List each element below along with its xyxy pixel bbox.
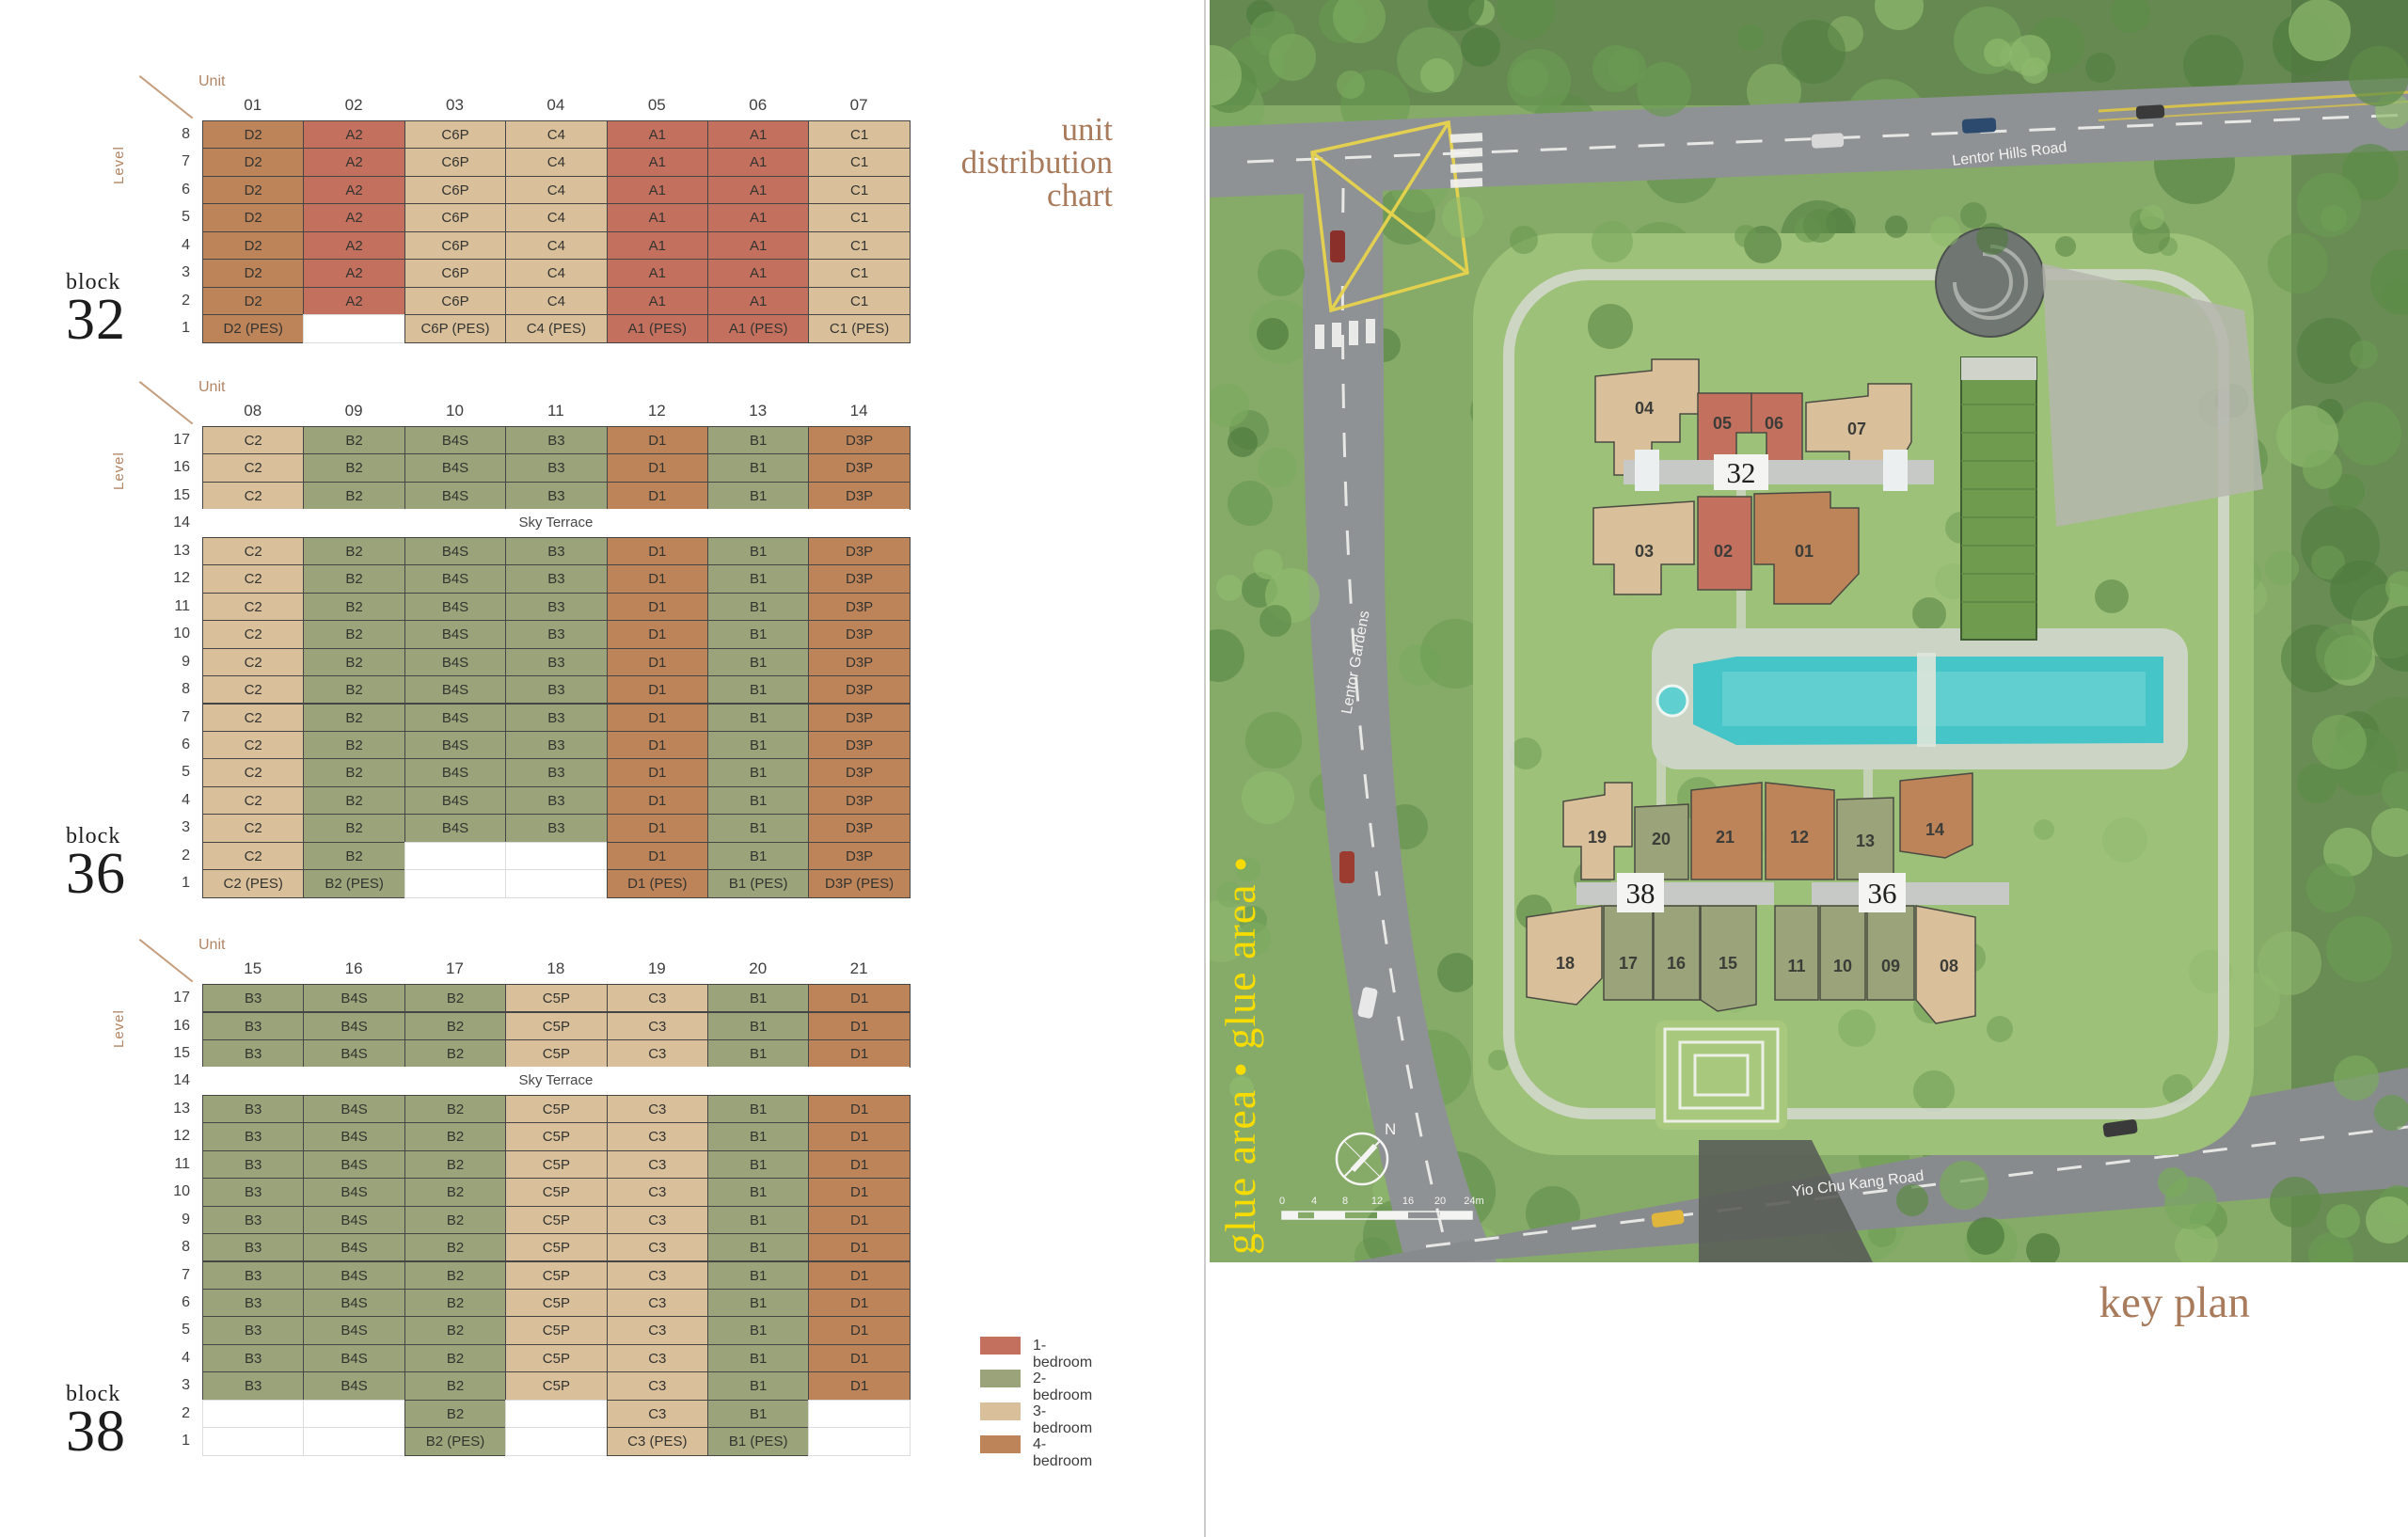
unit-cell: D1 [808, 1344, 910, 1372]
level-number: 13 [141, 537, 190, 564]
unit-cell: B1 [707, 1316, 809, 1344]
level-number: 12 [141, 564, 190, 592]
plan-unit-11: 11 [1787, 957, 1805, 975]
unit-cell: B1 [707, 1233, 809, 1261]
unit-cell: C3 [607, 1206, 708, 1234]
level-number: 5 [141, 1316, 190, 1343]
unit-cell: D2 [202, 259, 304, 287]
block-number: 38 [66, 1405, 126, 1458]
plan-unit-02: 02 [1714, 542, 1733, 561]
unit-cell: B4S [404, 675, 506, 704]
unit-cell: C3 [607, 1316, 708, 1344]
column-header: 11 [505, 401, 606, 421]
legend-label: 4-bedroom [1033, 1436, 1092, 1470]
unit-cell: B4S [404, 482, 506, 510]
unit-cell: C6P [404, 148, 506, 176]
unit-cell: D1 [607, 482, 708, 510]
unit-cell: C2 (PES) [202, 869, 304, 897]
unit-cell: B1 [707, 482, 809, 510]
plan-unit-01: 01 [1795, 542, 1814, 561]
plan-unit-16: 16 [1667, 954, 1686, 973]
block-number: 32 [66, 293, 126, 346]
unit-cell: D3P [808, 593, 910, 621]
empty-cell [505, 1400, 607, 1428]
scale-12: 12 [1371, 1196, 1383, 1207]
unit-cell: B3 [505, 620, 607, 648]
unit-cell: C3 [607, 1344, 708, 1372]
unit-cell: C6P [404, 176, 506, 204]
unit-cell: D1 [808, 1095, 910, 1123]
unit-cell: C2 [202, 648, 304, 676]
block-label: block36 [66, 825, 126, 900]
unit-cell: A1 [707, 287, 809, 315]
column-header: 07 [808, 95, 909, 116]
level-number: 17 [141, 426, 190, 453]
unit-cell: C2 [202, 675, 304, 704]
unit-cell: A1 [707, 120, 809, 149]
unit-cell: D1 [607, 537, 708, 565]
unit-cell: C4 [505, 176, 607, 204]
unit-cell: C6P [404, 120, 506, 149]
unit-cell: D3P [808, 453, 910, 482]
level-number: 1 [141, 314, 190, 341]
unit-cell: B3 [505, 786, 607, 815]
unit-cell: C2 [202, 786, 304, 815]
unit-cell: B4S [404, 620, 506, 648]
unit-cell: C1 [808, 203, 910, 231]
column-header: 16 [303, 959, 404, 979]
column-header: 10 [404, 401, 505, 421]
empty-cell [505, 1427, 607, 1455]
unit-cell: B2 (PES) [404, 1427, 506, 1455]
unit-cell: C2 [202, 426, 304, 454]
axis-diagonal-line [139, 75, 194, 119]
column-header: 15 [202, 959, 303, 979]
unit-cell: B2 [404, 1178, 506, 1206]
plan-block-38: 38 [1626, 877, 1655, 910]
unit-cell: A2 [303, 231, 404, 260]
unit-cell: C3 [607, 1233, 708, 1261]
unit-cell: B4S [303, 1122, 404, 1150]
unit-cell: C5P [505, 1206, 607, 1234]
level-number: 1 [141, 1427, 190, 1454]
empty-cell [505, 842, 607, 870]
unit-cell: C4 [505, 120, 607, 149]
key-plan-aerial: 04 05 06 07 03 02 01 32 19 20 21 12 13 1… [1210, 0, 2408, 1262]
legend-swatch-4bedroom [980, 1435, 1021, 1453]
column-header: 21 [808, 959, 909, 979]
unit-cell: D2 (PES) [202, 314, 304, 342]
unit-cell: D3P [808, 842, 910, 870]
unit-cell: C2 [202, 731, 304, 759]
column-header: 20 [707, 959, 808, 979]
column-header: 13 [707, 401, 808, 421]
column-header: 03 [404, 95, 505, 116]
unit-cell: B1 [707, 537, 809, 565]
unit-cell: B3 [202, 1095, 304, 1123]
level-number: 14 [141, 509, 190, 536]
unit-cell: B4S [303, 1316, 404, 1344]
empty-cell [303, 314, 404, 342]
unit-cell: A1 (PES) [607, 314, 708, 342]
unit-cell: D1 [808, 1178, 910, 1206]
scale-4: 4 [1311, 1196, 1317, 1207]
unit-cell: C4 [505, 259, 607, 287]
unit-cell: B2 [303, 704, 404, 732]
empty-cell [202, 1400, 304, 1428]
unit-cell: C3 [607, 1371, 708, 1400]
unit-cell: D3P [808, 537, 910, 565]
unit-cell: B3 [202, 1039, 304, 1068]
unit-cell: B1 [707, 1039, 809, 1068]
unit-cell: D3P (PES) [808, 869, 910, 897]
unit-cell: B1 [707, 842, 809, 870]
unit-cell: A1 [607, 287, 708, 315]
unit-cell: B2 [303, 453, 404, 482]
unit-axis-label: Unit [198, 937, 225, 954]
unit-cell: C5P [505, 984, 607, 1012]
unit-cell: B2 [303, 620, 404, 648]
level-number: 11 [141, 593, 190, 620]
block-label: block32 [66, 271, 126, 346]
unit-cell: C3 [607, 1122, 708, 1150]
level-number: 11 [141, 1150, 190, 1178]
unit-cell: B3 [505, 731, 607, 759]
plan-unit-15: 15 [1719, 954, 1737, 973]
plan-unit-17: 17 [1619, 954, 1638, 973]
level-number: 13 [141, 1095, 190, 1122]
page: unit distribution chart UnitLevel0102030… [0, 0, 2408, 1537]
unit-cell: D1 [808, 984, 910, 1012]
unit-cell: B1 [707, 814, 809, 842]
level-number: 8 [141, 675, 190, 703]
unit-cell: C3 [607, 1095, 708, 1123]
legend-label: 3-bedroom [1033, 1403, 1092, 1437]
unit-cell: C1 [808, 120, 910, 149]
unit-cell: B4S [404, 426, 506, 454]
unit-cell: C3 [607, 1178, 708, 1206]
unit-cell: B1 [707, 1122, 809, 1150]
block-label: block38 [66, 1383, 126, 1458]
unit-cell: A1 [707, 231, 809, 260]
column-header: 17 [404, 959, 505, 979]
sky-terrace-cell: Sky Terrace [202, 509, 910, 537]
unit-cell: A2 [303, 176, 404, 204]
unit-cell: C2 [202, 620, 304, 648]
unit-cell: B3 [202, 1316, 304, 1344]
unit-cell: B2 [303, 593, 404, 621]
unit-cell: B3 [505, 593, 607, 621]
level-axis-label: Level [111, 995, 127, 1063]
unit-cell: C5P [505, 1178, 607, 1206]
unit-cell: B3 [505, 564, 607, 593]
plan-block-36: 36 [1868, 877, 1897, 910]
unit-cell: B4S [404, 814, 506, 842]
column-header: 01 [202, 95, 303, 116]
unit-cell: B1 [707, 1095, 809, 1123]
unit-cell: D1 [808, 1150, 910, 1179]
plan-unit-18: 18 [1556, 954, 1575, 973]
unit-cell: B4S [303, 1012, 404, 1040]
unit-cell: D1 [808, 1122, 910, 1150]
unit-cell: C2 [202, 814, 304, 842]
unit-cell: B1 [707, 984, 809, 1012]
unit-cell: C4 (PES) [505, 314, 607, 342]
plan-unit-03: 03 [1635, 542, 1654, 561]
unit-cell: B4S [404, 564, 506, 593]
unit-cell: D2 [202, 176, 304, 204]
unit-cell: B2 [404, 1122, 506, 1150]
unit-cell: B1 [707, 426, 809, 454]
unit-cell: B2 [404, 1316, 506, 1344]
unit-cell: A1 [607, 176, 708, 204]
column-header: 19 [607, 959, 707, 979]
unit-cell: B2 [404, 1012, 506, 1040]
unit-cell: D1 [607, 593, 708, 621]
unit-cell: C4 [505, 231, 607, 260]
unit-cell: C6P [404, 231, 506, 260]
unit-cell: D1 [607, 648, 708, 676]
plan-unit-04: 04 [1635, 399, 1654, 418]
unit-cell: B1 [707, 1150, 809, 1179]
unit-cell: B2 [303, 564, 404, 593]
unit-cell: C2 [202, 564, 304, 593]
level-number: 8 [141, 1233, 190, 1260]
unit-cell: C3 [607, 1039, 708, 1068]
scale-20: 20 [1434, 1196, 1446, 1207]
unit-cell: B2 [404, 1344, 506, 1372]
unit-cell: B1 [707, 731, 809, 759]
level-number: 6 [141, 176, 190, 203]
unit-cell: D2 [202, 287, 304, 315]
column-header: 08 [202, 401, 303, 421]
unit-cell: A2 [303, 259, 404, 287]
unit-cell: C5P [505, 1261, 607, 1290]
watermark-glue-area: glue area • glue area • [1215, 856, 1265, 1255]
plan-unit-21: 21 [1716, 828, 1735, 847]
unit-cell: C4 [505, 287, 607, 315]
plan-unit-05: 05 [1713, 414, 1732, 433]
unit-cell: C6P [404, 287, 506, 315]
empty-cell [808, 1427, 910, 1455]
empty-cell [303, 1427, 404, 1455]
unit-cell: B1 [707, 648, 809, 676]
site [1473, 228, 2263, 1262]
unit-axis-label: Unit [198, 379, 225, 396]
plan-unit-13: 13 [1856, 832, 1875, 850]
unit-cell: B4S [404, 731, 506, 759]
unit-cell: D1 [808, 1233, 910, 1261]
unit-cell: C5P [505, 1371, 607, 1400]
unit-cell: D3P [808, 675, 910, 704]
level-number: 15 [141, 1039, 190, 1067]
unit-cell: C3 [607, 1400, 708, 1428]
unit-cell: D2 [202, 120, 304, 149]
unit-cell: B4S [404, 593, 506, 621]
unit-cell: D1 [607, 453, 708, 482]
unit-cell: B1 [707, 786, 809, 815]
scale-24m: 24m [1464, 1196, 1483, 1207]
column-header: 09 [303, 401, 404, 421]
column-header: 02 [303, 95, 404, 116]
unit-cell: B1 [707, 704, 809, 732]
unit-cell: C5P [505, 1150, 607, 1179]
unit-cell: A1 [607, 231, 708, 260]
unit-cell: C3 [607, 1289, 708, 1317]
scale-8: 8 [1342, 1196, 1348, 1207]
unit-cell: B1 [707, 1012, 809, 1040]
empty-cell [808, 1400, 910, 1428]
unit-cell: A1 [607, 120, 708, 149]
unit-cell: B3 [202, 1289, 304, 1317]
unit-cell: B1 [707, 1344, 809, 1372]
unit-cell: D1 [607, 731, 708, 759]
unit-cell: B4S [404, 648, 506, 676]
unit-cell: D1 [808, 1316, 910, 1344]
unit-cell: B2 [303, 814, 404, 842]
unit-cell: B3 [202, 1178, 304, 1206]
column-header: 12 [607, 401, 707, 421]
unit-cell: C6P [404, 259, 506, 287]
unit-cell: C4 [505, 203, 607, 231]
level-number: 6 [141, 1289, 190, 1316]
unit-cell: C5P [505, 1039, 607, 1068]
carpark-green-roof [1961, 357, 2036, 640]
level-number: 16 [141, 1012, 190, 1039]
unit-cell: B2 [404, 1261, 506, 1290]
unit-cell: C1 [808, 231, 910, 260]
unit-cell: B3 [202, 1206, 304, 1234]
unit-cell: B2 [404, 1233, 506, 1261]
level-number: 10 [141, 1178, 190, 1205]
unit-cell: B4S [303, 1261, 404, 1290]
scale-16: 16 [1402, 1196, 1414, 1207]
plan-unit-20: 20 [1652, 830, 1671, 848]
unit-cell: B3 [202, 984, 304, 1012]
unit-cell: B2 [404, 1371, 506, 1400]
level-number: 9 [141, 648, 190, 675]
unit-cell: B2 [303, 675, 404, 704]
spa-pool [1657, 686, 1687, 716]
unit-cell: B4S [404, 453, 506, 482]
level-number: 7 [141, 148, 190, 175]
unit-cell: D1 [607, 564, 708, 593]
level-axis-label: Level [111, 437, 127, 505]
block-number: 36 [66, 848, 126, 900]
unit-cell: D1 [808, 1012, 910, 1040]
unit-cell: B4S [303, 1178, 404, 1206]
unit-cell: D1 [607, 675, 708, 704]
unit-cell: B3 [505, 453, 607, 482]
unit-cell: C2 [202, 537, 304, 565]
unit-cell: C2 [202, 593, 304, 621]
empty-cell [303, 1400, 404, 1428]
unit-cell: C2 [202, 842, 304, 870]
unit-cell: B1 [707, 453, 809, 482]
plan-unit-06: 06 [1765, 414, 1783, 433]
plan-unit-08: 08 [1940, 957, 1958, 975]
unit-cell: B1 [707, 758, 809, 786]
unit-cell: B4S [404, 758, 506, 786]
unit-cell: B3 [202, 1150, 304, 1179]
unit-cell: B1 [707, 1400, 809, 1428]
unit-cell: B3 [505, 648, 607, 676]
legend-swatch-1bedroom [980, 1337, 1021, 1355]
unit-cell: D1 [607, 786, 708, 815]
unit-cell: C3 [607, 1150, 708, 1179]
level-number: 12 [141, 1122, 190, 1149]
level-number: 2 [141, 287, 190, 314]
level-number: 5 [141, 758, 190, 785]
unit-cell: B2 [303, 731, 404, 759]
unit-cell: B4S [404, 786, 506, 815]
keyplan-title: key plan [2013, 1277, 2250, 1328]
unit-cell: B3 [202, 1012, 304, 1040]
unit-cell: B4S [303, 1039, 404, 1068]
unit-cell: D1 [607, 814, 708, 842]
axis-diagonal-line [139, 381, 194, 424]
unit-cell: C2 [202, 482, 304, 510]
scale-0: 0 [1279, 1196, 1285, 1207]
unit-cell: D1 [607, 842, 708, 870]
unit-cell: D3P [808, 564, 910, 593]
unit-cell: C6P (PES) [404, 314, 506, 342]
unit-cell: C3 [607, 984, 708, 1012]
panel-divider [1204, 0, 1206, 1537]
unit-cell: B3 [505, 537, 607, 565]
unit-cell: A2 [303, 287, 404, 315]
unit-cell: B1 [707, 1261, 809, 1290]
unit-cell: A1 [607, 259, 708, 287]
unit-cell: B1 [707, 1371, 809, 1400]
unit-cell: D2 [202, 203, 304, 231]
unit-cell: D1 [607, 620, 708, 648]
unit-cell: A1 [707, 259, 809, 287]
unit-cell: D1 [607, 704, 708, 732]
unit-cell: B3 [505, 482, 607, 510]
unit-cell: C2 [202, 453, 304, 482]
maze-garden [1655, 1021, 1787, 1130]
unit-cell: D3P [808, 758, 910, 786]
unit-cell: C3 [607, 1261, 708, 1290]
unit-cell: B3 [505, 814, 607, 842]
unit-cell: B3 [202, 1344, 304, 1372]
unit-cell: B2 [404, 1400, 506, 1428]
unit-cell: C6P [404, 203, 506, 231]
unit-cell: C5P [505, 1289, 607, 1317]
unit-cell: C5P [505, 1122, 607, 1150]
unit-cell: B1 [707, 593, 809, 621]
plan-unit-09: 09 [1881, 957, 1900, 975]
level-number: 5 [141, 203, 190, 230]
unit-cell: C3 [607, 1012, 708, 1040]
level-number: 7 [141, 704, 190, 731]
unit-cell: C2 [202, 704, 304, 732]
level-number: 3 [141, 259, 190, 286]
unit-cell: B2 [404, 984, 506, 1012]
legend-label: 2-bedroom [1033, 1371, 1092, 1404]
compass-n-label: N [1385, 1120, 1396, 1138]
unit-cell: A2 [303, 120, 404, 149]
unit-cell: C1 [808, 176, 910, 204]
column-header: 06 [707, 95, 808, 116]
sky-terrace-cell: Sky Terrace [202, 1067, 910, 1095]
unit-cell: D2 [202, 148, 304, 176]
level-number: 3 [141, 1371, 190, 1399]
level-number: 2 [141, 842, 190, 869]
empty-cell [404, 842, 506, 870]
plan-unit-19: 19 [1588, 828, 1607, 847]
